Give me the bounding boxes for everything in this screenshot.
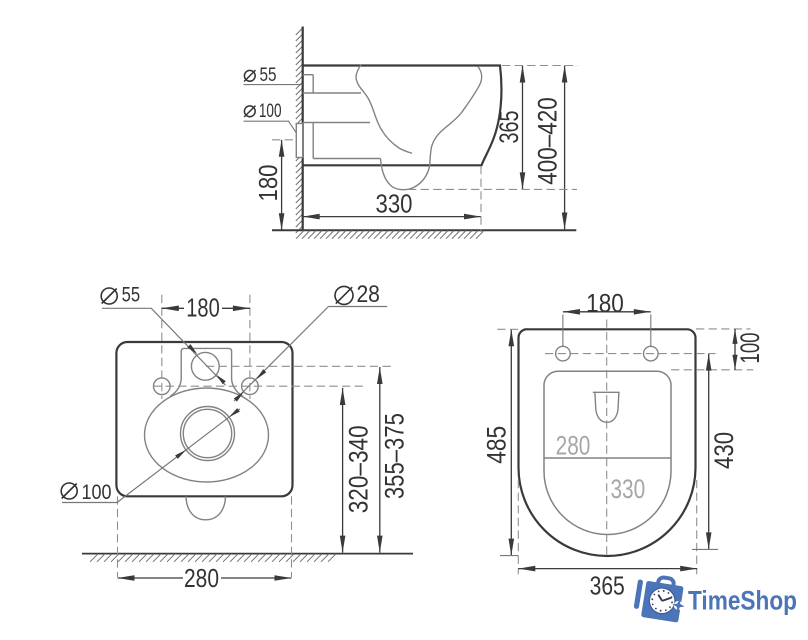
svg-text:180: 180: [253, 165, 283, 202]
svg-text:100: 100: [82, 481, 112, 504]
svg-text:280: 280: [556, 431, 591, 461]
svg-text:430: 430: [709, 432, 739, 469]
svg-text:28: 28: [356, 281, 380, 308]
svg-text:55: 55: [122, 283, 141, 306]
svg-text:330: 330: [610, 474, 645, 504]
svg-text:320–340: 320–340: [343, 425, 373, 513]
svg-text:365: 365: [494, 111, 524, 144]
svg-text:365: 365: [590, 571, 625, 601]
svg-text:280: 280: [184, 563, 219, 593]
svg-text:180: 180: [586, 288, 624, 318]
svg-text:330: 330: [376, 189, 413, 219]
svg-text:100: 100: [735, 333, 765, 364]
svg-text:100: 100: [259, 101, 282, 122]
svg-text:485: 485: [482, 426, 512, 464]
svg-text:180: 180: [186, 292, 220, 322]
svg-text:TimeShop: TimeShop: [688, 586, 797, 616]
svg-text:400–420: 400–420: [533, 97, 563, 185]
svg-text:355–375: 355–375: [380, 413, 410, 499]
svg-text:55: 55: [260, 65, 277, 86]
